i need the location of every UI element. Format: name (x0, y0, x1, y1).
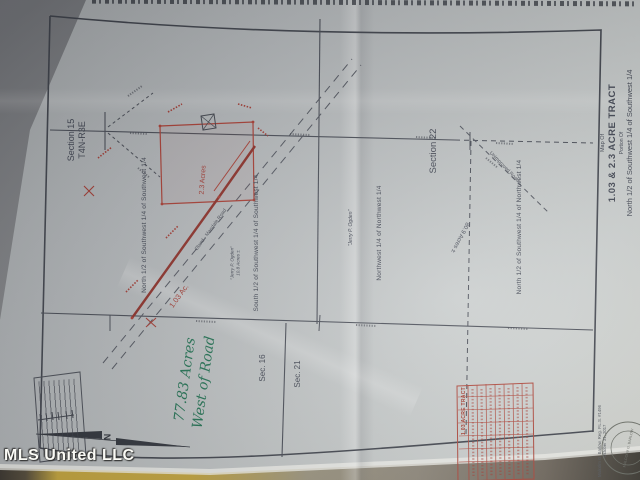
south-half-sw-sw-label: South 1/2 of Southwest 1/4 of Southwest … (253, 175, 261, 312)
owner-center-label: "Jerry P. Ogden" 10.8 Acres ± (229, 246, 240, 280)
plat-linework (0, 0, 640, 480)
map-title-text: 1.03 & 2.3 ACRE TRACT (607, 70, 619, 217)
owner-center-name: "Jerry P. Ogden" (229, 246, 235, 280)
section-22-label: Section 22 (428, 129, 440, 174)
titleblock-notes (38, 379, 80, 457)
sec-21-label: Sec. 21 (293, 360, 303, 387)
photo-of-survey-plat: Section 15 T4N-R3E Section 22 Sec. 16 Se… (0, 0, 640, 480)
township-text: T4N-R3E (77, 119, 88, 162)
owner-center-acres: 10.8 Acres ± (235, 246, 241, 280)
map-of-text: Map Of (600, 70, 607, 217)
map-description-text: North 1/2 of Southwest 1/4 of Southwest … (625, 70, 634, 217)
section-15-label: Section 15 T4N-R3E (66, 119, 89, 162)
surveyor-signature: Malcolm G. Barlow, Reg. P.L.S. #1496 Oct… (598, 405, 609, 477)
sec-16-label: Sec. 16 (258, 354, 268, 381)
owner-right-label: "Jerry P. Ogden" (348, 210, 354, 247)
north-half-sw-sw-label: North 1/2 of Southwest 1/4 of Southwest … (141, 157, 149, 293)
map-title-block: Map Of 1.03 & 2.3 ACRE TRACT Portion Of … (600, 70, 634, 217)
mls-watermark: MLS United LLC (4, 447, 135, 465)
section-15-text: Section 15 (66, 119, 77, 162)
north-arrow-letter: N (102, 434, 113, 441)
line-table-title: 1.03 ACRE TRACT (461, 387, 467, 435)
nw-nw-label: Northwest 1/4 of Northwest 1/4 (376, 185, 384, 280)
surveyor-date-line: October 31, 2017 (603, 405, 608, 477)
